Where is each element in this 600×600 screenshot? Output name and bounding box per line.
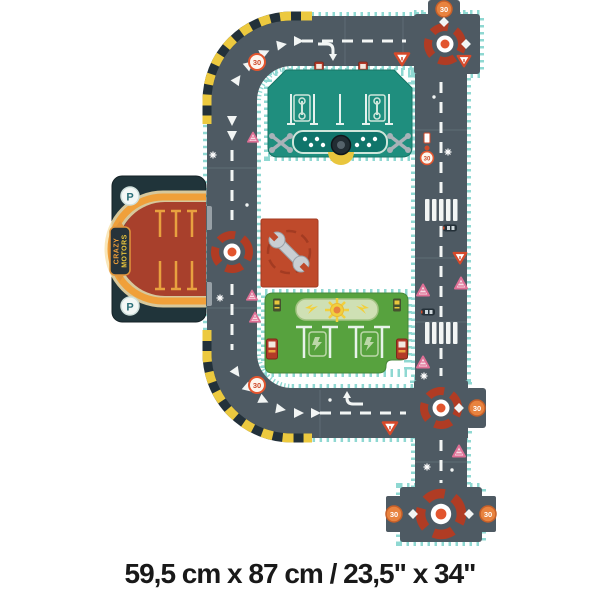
parking-letter: P (126, 302, 133, 314)
speed-30-sign-icon (249, 54, 265, 70)
brand-line1: CRAZY (114, 238, 121, 265)
speed-30-sign-icon (469, 400, 485, 416)
tire-icon (332, 136, 351, 155)
parking-letter: P (126, 192, 133, 204)
pump-icon (393, 299, 401, 312)
parking-badge: P (121, 187, 139, 205)
speed-30-sign-icon (480, 506, 496, 522)
product-image: 30 30 (0, 0, 600, 600)
parking-badge: P (121, 297, 139, 315)
pump-icon (273, 299, 281, 312)
small-sign-icon (424, 133, 430, 151)
speed-30-sign-icon (249, 377, 265, 393)
speed-30-sign-icon (421, 152, 434, 165)
speed-30-sign-icon (436, 1, 452, 17)
service-station-piece (268, 62, 412, 165)
speed-30-sign-icon (386, 506, 402, 522)
crazy-motors-badge: CRAZY MOTORS (110, 221, 130, 281)
fuel-pump-icon (267, 339, 278, 359)
fuel-pump-icon (397, 339, 408, 359)
brand-line2: MOTORS (122, 234, 129, 268)
repair-tile-piece (261, 219, 318, 287)
track-illustration: 30 30 (0, 0, 600, 600)
garage-piece: P P CRAZY MOTORS (110, 176, 212, 322)
dimensions-caption: 59,5 cm x 87 cm / 23,5" x 34" (0, 558, 600, 590)
car-icon (421, 309, 435, 316)
charging-station-piece (265, 293, 408, 373)
car-icon (443, 225, 457, 232)
